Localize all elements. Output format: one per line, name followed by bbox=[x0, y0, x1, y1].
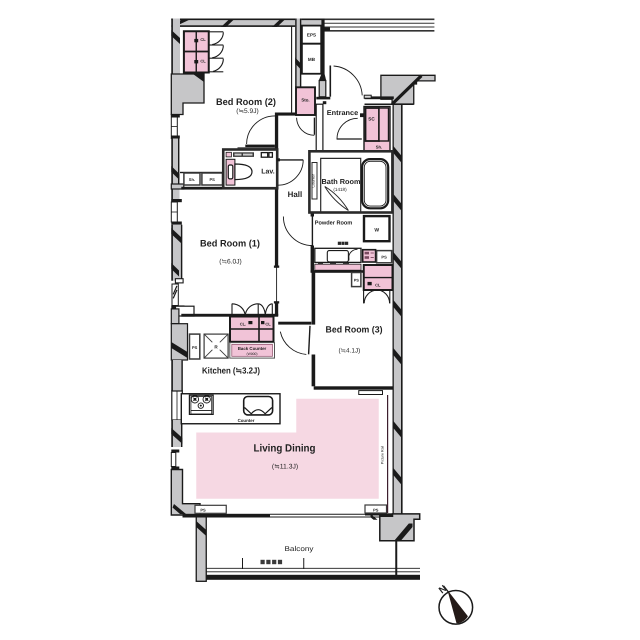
svg-text:Sto.: Sto. bbox=[301, 98, 309, 103]
svg-text:PS: PS bbox=[210, 177, 216, 182]
svg-text:(≒6.0J): (≒6.0J) bbox=[219, 259, 241, 266]
svg-text:PS: PS bbox=[192, 345, 198, 350]
svg-text:Balcony: Balcony bbox=[285, 545, 315, 553]
svg-text:W: W bbox=[374, 227, 379, 233]
svg-text:CL: CL bbox=[375, 282, 381, 287]
svg-text:Kitchen (≒3.2J): Kitchen (≒3.2J) bbox=[202, 366, 260, 376]
svg-text:EPS: EPS bbox=[307, 33, 316, 38]
svg-text:PS: PS bbox=[381, 255, 387, 260]
svg-text:Sh.: Sh. bbox=[189, 177, 195, 182]
svg-text:Picture Rail: Picture Rail bbox=[381, 446, 385, 465]
svg-text:Living Dining: Living Dining bbox=[254, 442, 316, 454]
svg-text:(≒4.1J): (≒4.1J) bbox=[339, 347, 361, 354]
svg-text:CL: CL bbox=[265, 321, 271, 326]
svg-text:(1418): (1418) bbox=[333, 187, 347, 192]
svg-text:Bed Room (1): Bed Room (1) bbox=[200, 239, 260, 250]
svg-text:Entrance: Entrance bbox=[327, 110, 359, 117]
svg-text:CL: CL bbox=[200, 37, 206, 42]
svg-text:Bath Room: Bath Room bbox=[322, 177, 361, 186]
svg-text:PS: PS bbox=[373, 507, 379, 512]
svg-text:(≒5.9J): (≒5.9J) bbox=[236, 108, 258, 115]
svg-text:CL.: CL. bbox=[240, 321, 246, 326]
svg-text:Counter: Counter bbox=[312, 173, 316, 187]
svg-text:Bed Room (3): Bed Room (3) bbox=[326, 325, 383, 335]
svg-text:CL: CL bbox=[200, 58, 206, 63]
svg-text:Hall: Hall bbox=[288, 190, 303, 199]
svg-text:Powder Room: Powder Room bbox=[315, 220, 353, 227]
svg-text:PS: PS bbox=[354, 279, 360, 283]
svg-text:MB: MB bbox=[308, 57, 316, 62]
svg-text:Sh.: Sh. bbox=[376, 144, 383, 149]
svg-text:SC: SC bbox=[368, 117, 375, 122]
svg-text:(W900): (W900) bbox=[246, 352, 257, 356]
svg-text:(≒11.3J): (≒11.3J) bbox=[272, 463, 298, 470]
svg-text:Counter: Counter bbox=[238, 418, 255, 423]
svg-text:Bed Room (2): Bed Room (2) bbox=[216, 97, 276, 108]
svg-text:PS: PS bbox=[200, 508, 206, 513]
svg-text:Lav.: Lav. bbox=[261, 168, 275, 175]
svg-text:Back Counter: Back Counter bbox=[238, 346, 267, 351]
